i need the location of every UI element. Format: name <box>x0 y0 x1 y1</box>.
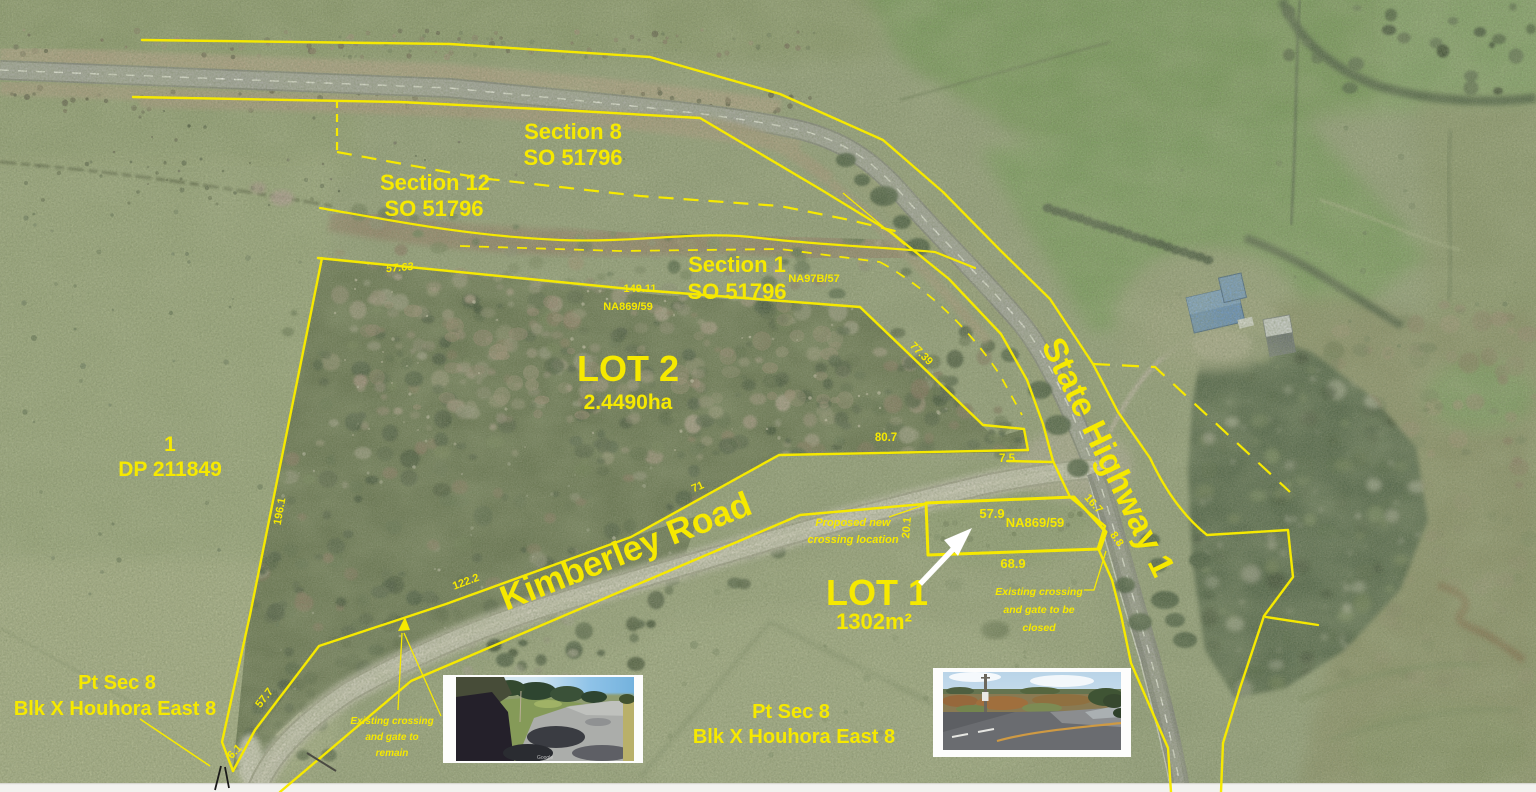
svg-text:80.7: 80.7 <box>875 432 897 444</box>
svg-text:and gate to: and gate to <box>365 732 418 743</box>
svg-text:Existing crossing: Existing crossing <box>350 716 433 727</box>
svg-text:Blk X Houhora East 8: Blk X Houhora East 8 <box>14 698 216 720</box>
svg-text:DP 211849: DP 211849 <box>118 458 222 481</box>
svg-text:Blk X Houhora East 8: Blk X Houhora East 8 <box>693 726 895 748</box>
svg-text:and gate to be: and gate to be <box>1003 604 1074 616</box>
svg-text:Section 8: Section 8 <box>524 119 622 144</box>
svg-text:NA97B/57: NA97B/57 <box>788 273 839 285</box>
svg-text:Proposed new: Proposed new <box>815 517 892 529</box>
svg-text:LOT 1: LOT 1 <box>826 572 928 613</box>
svg-text:SO 51796: SO 51796 <box>384 196 483 221</box>
svg-text:Google: Google <box>537 755 553 761</box>
svg-text:7.5: 7.5 <box>999 453 1016 465</box>
svg-text:1: 1 <box>164 433 176 456</box>
svg-text:68.9: 68.9 <box>1000 556 1025 571</box>
svg-text:Existing crossing: Existing crossing <box>995 586 1083 598</box>
svg-text:NA869/59: NA869/59 <box>1006 515 1065 530</box>
svg-text:Pt Sec 8: Pt Sec 8 <box>752 701 830 723</box>
svg-text:LOT 2: LOT 2 <box>577 348 679 389</box>
svg-text:Section 1: Section 1 <box>688 252 786 277</box>
svg-text:149.11: 149.11 <box>623 283 656 295</box>
svg-text:Pt Sec 8: Pt Sec 8 <box>78 672 156 694</box>
svg-text:SO 51796: SO 51796 <box>687 279 786 304</box>
svg-text:NA869/59: NA869/59 <box>603 301 653 313</box>
svg-text:closed: closed <box>1022 622 1056 634</box>
svg-text:SO 51796: SO 51796 <box>523 145 622 170</box>
svg-text:remain: remain <box>376 748 409 759</box>
svg-text:2.4490ha: 2.4490ha <box>584 391 673 414</box>
svg-text:20.1: 20.1 <box>900 517 914 539</box>
svg-text:Section 12: Section 12 <box>380 170 490 195</box>
svg-text:crossing location: crossing location <box>807 534 898 546</box>
svg-text:57.9: 57.9 <box>979 506 1004 521</box>
svg-text:1302m²: 1302m² <box>836 609 912 634</box>
svg-text:57.63: 57.63 <box>386 261 414 275</box>
